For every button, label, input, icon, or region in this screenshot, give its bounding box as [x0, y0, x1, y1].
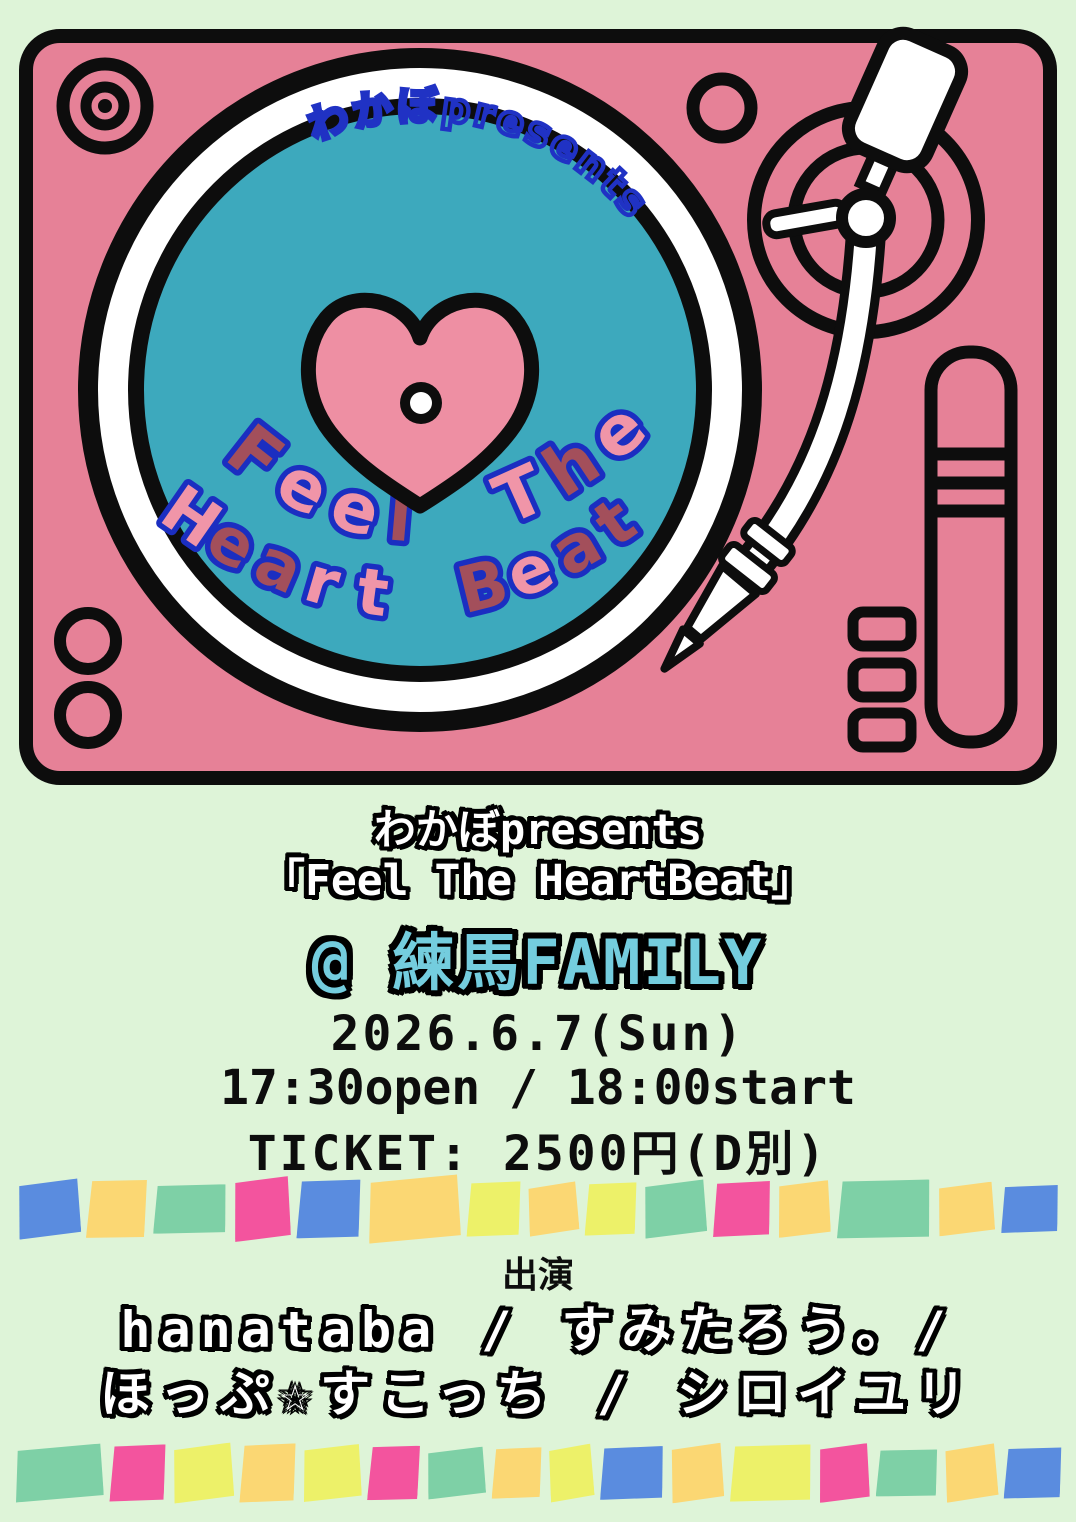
- flag: [492, 1444, 543, 1500]
- flag: [233, 1176, 291, 1242]
- flag: [239, 1440, 296, 1505]
- flag: [818, 1443, 870, 1503]
- flag: [713, 1179, 771, 1239]
- flag: [943, 1443, 999, 1502]
- flag: [302, 1444, 362, 1502]
- open-start-time: 17:30open / 18:00start: [0, 1060, 1076, 1116]
- flag: [1004, 1444, 1063, 1501]
- flag: [730, 1441, 812, 1504]
- flag: [296, 1176, 361, 1241]
- flag: [467, 1178, 522, 1239]
- flag: [837, 1176, 931, 1241]
- flag: [86, 1176, 148, 1242]
- flag: [526, 1181, 580, 1236]
- flag: [426, 1446, 487, 1499]
- pitch-slider: [931, 352, 1011, 742]
- flag: [643, 1179, 708, 1238]
- confetti-banner-bottom: [0, 1430, 1076, 1514]
- flag: [172, 1442, 235, 1503]
- flag: [153, 1181, 227, 1235]
- flag: [1001, 1183, 1059, 1235]
- event-title-line2: 「Feel The HeartBeat」: [0, 846, 1076, 908]
- flag: [876, 1446, 939, 1499]
- control-buttons: [853, 612, 911, 747]
- flag: [367, 1442, 421, 1503]
- flag: [14, 1443, 104, 1502]
- lineup-line1: hanataba / すみたろう。/: [0, 1290, 1076, 1362]
- flag: [670, 1442, 725, 1503]
- event-flyer: わかぼpresents Feel The Heart Beat: [0, 0, 1076, 1522]
- flag: [367, 1174, 461, 1243]
- event-date: 2026.6.7(Sun): [0, 1006, 1076, 1062]
- turntable-illustration: わかぼpresents Feel The Heart Beat: [0, 0, 1076, 800]
- confetti-banner-top: [0, 1166, 1076, 1250]
- flag: [17, 1178, 82, 1239]
- power-button-icon: [693, 79, 751, 137]
- flag: [109, 1441, 166, 1504]
- flag: [547, 1443, 595, 1502]
- flag: [937, 1181, 996, 1236]
- flag: [585, 1179, 638, 1238]
- flag: [600, 1443, 664, 1501]
- venue: @ 練馬FAMILY: [0, 912, 1076, 1002]
- lineup-line2: ほっぷ☆すこっち / シロイユリ: [0, 1354, 1076, 1426]
- flag: [777, 1180, 831, 1238]
